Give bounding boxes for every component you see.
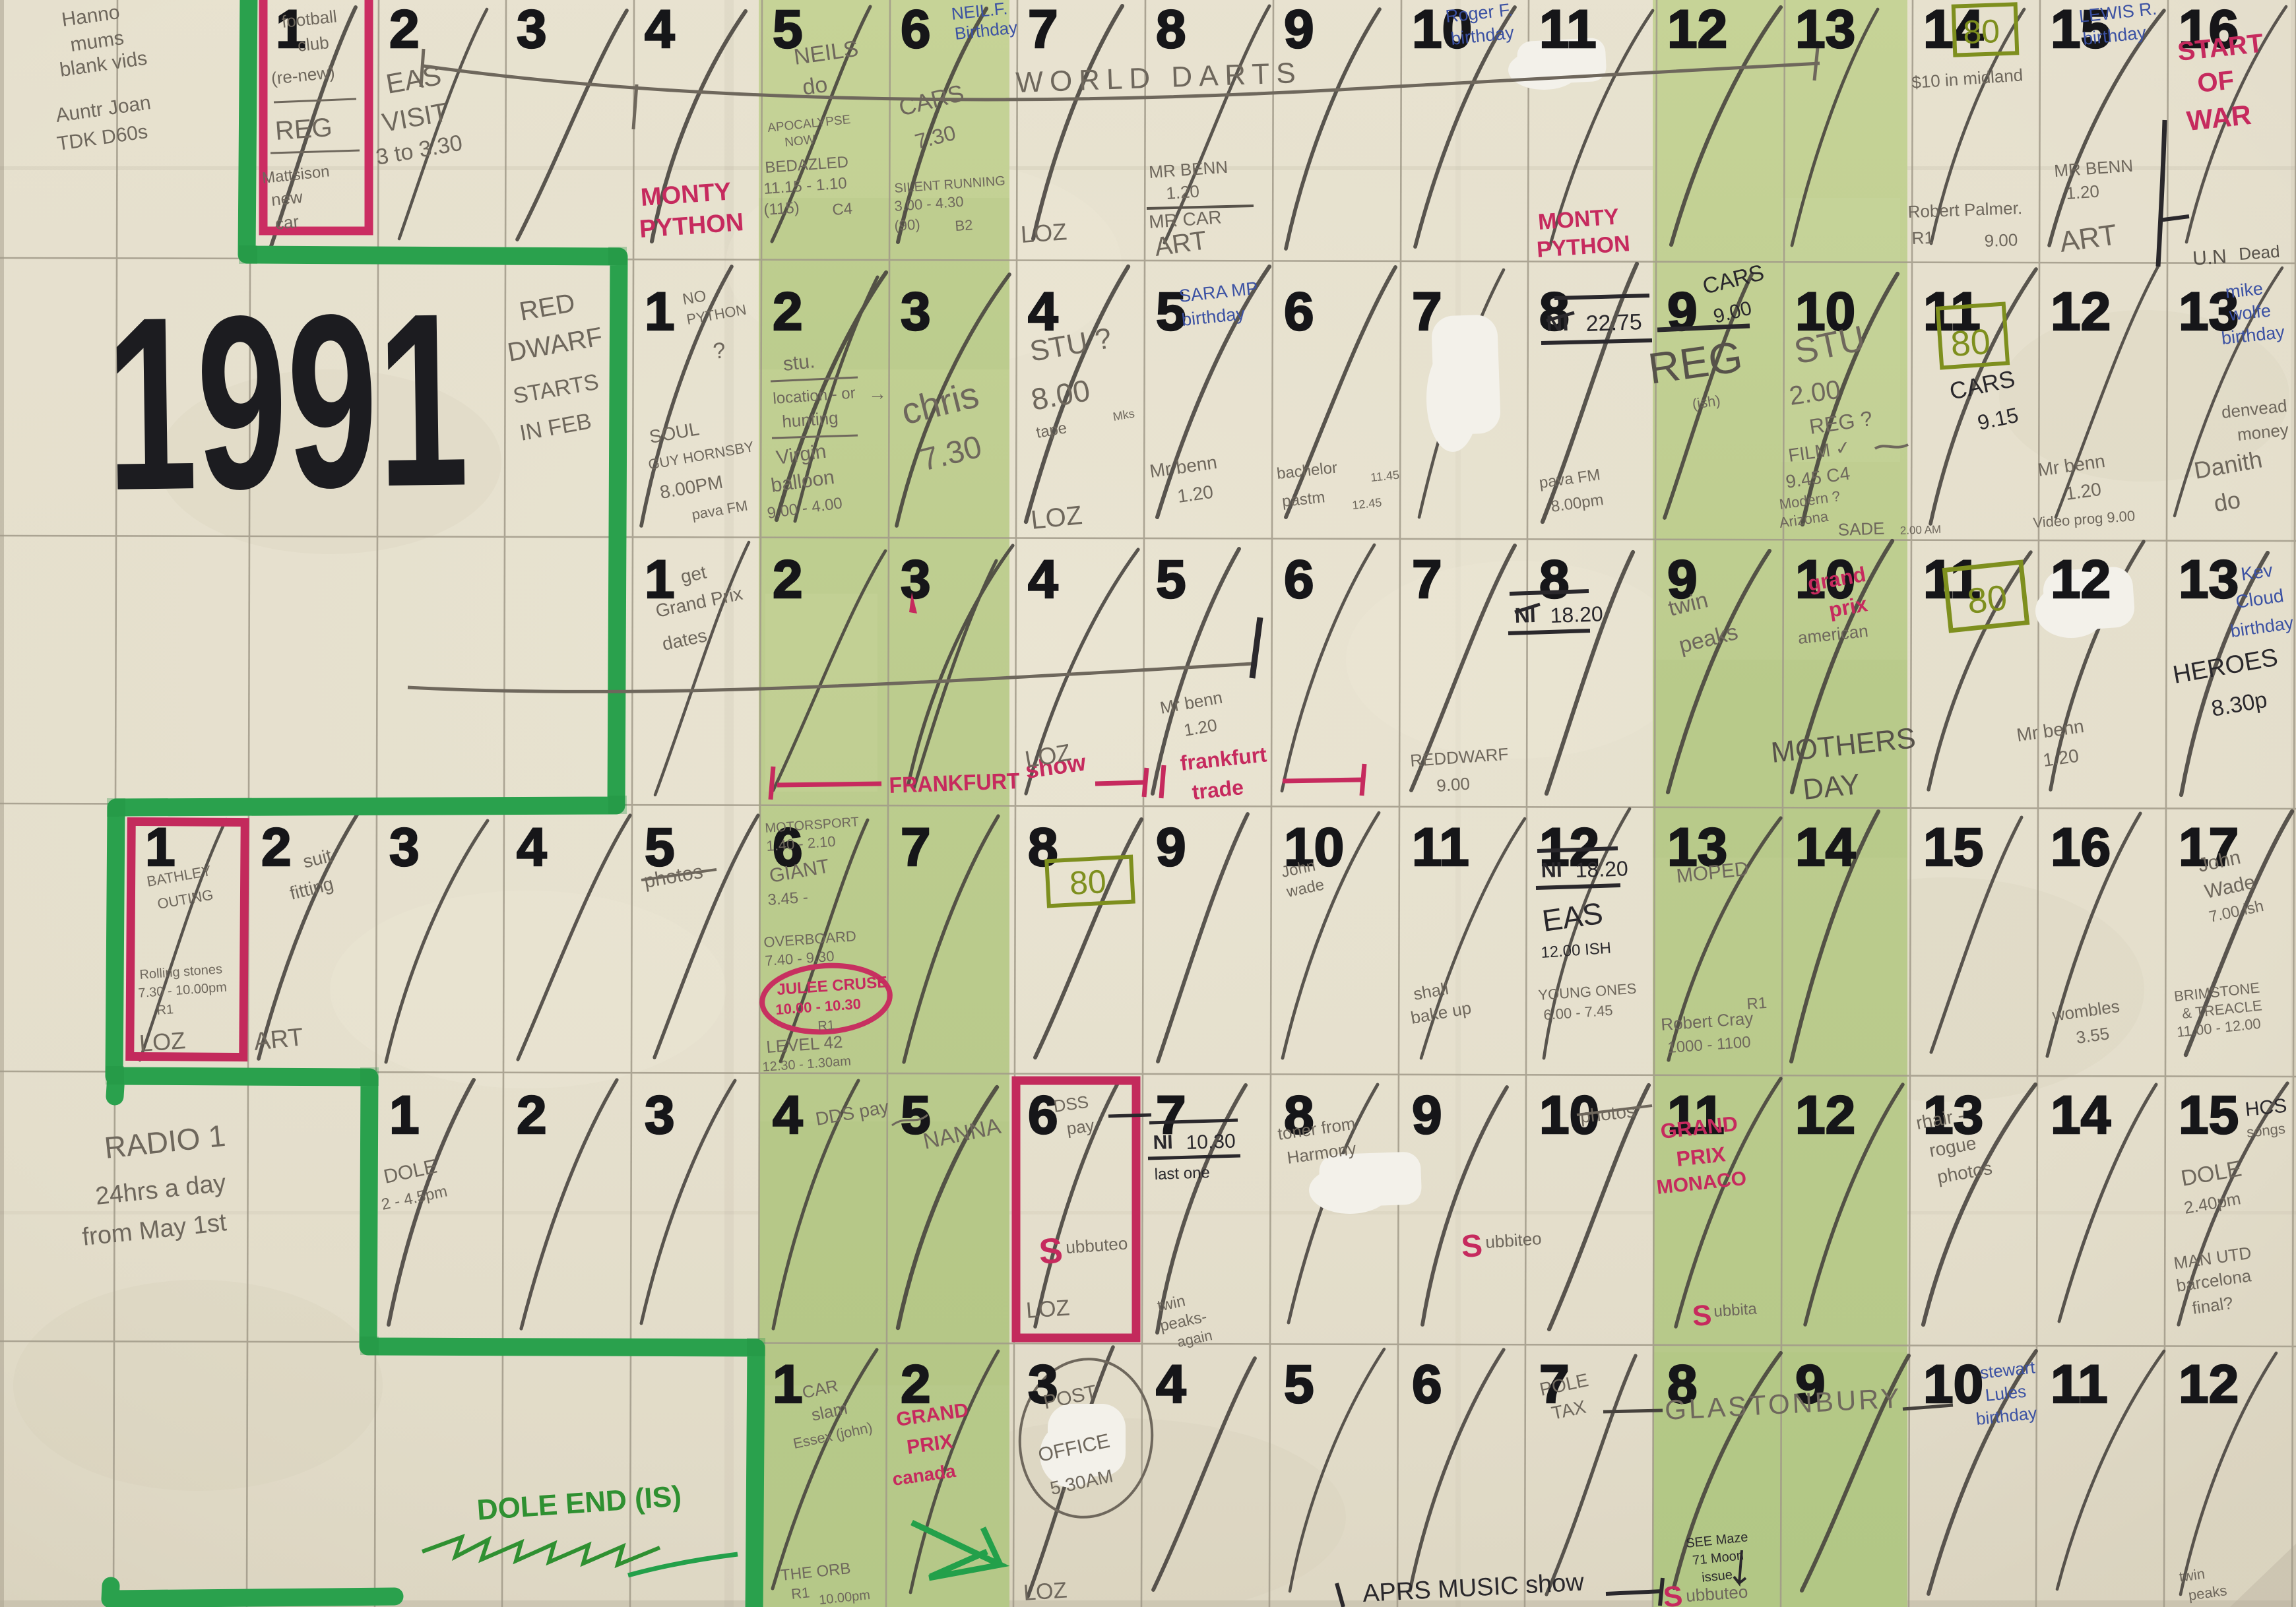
svg-text:S: S bbox=[1691, 1299, 1713, 1333]
svg-text:2: 2 bbox=[389, 0, 420, 59]
svg-text:(90): (90) bbox=[894, 216, 921, 234]
svg-text:?: ? bbox=[712, 338, 727, 364]
svg-text:9.00: 9.00 bbox=[1984, 230, 2018, 251]
svg-text:hunting: hunting bbox=[781, 408, 839, 431]
svg-text:mike: mike bbox=[2224, 278, 2264, 302]
svg-text:12: 12 bbox=[2179, 1354, 2239, 1414]
svg-text:S: S bbox=[1662, 1580, 1684, 1607]
svg-text:22.75: 22.75 bbox=[1585, 309, 1642, 336]
svg-text:5: 5 bbox=[1284, 1354, 1314, 1414]
svg-text:3: 3 bbox=[517, 0, 547, 59]
svg-text:HCS: HCS bbox=[2244, 1095, 2287, 1121]
svg-text:6: 6 bbox=[1412, 1354, 1442, 1414]
svg-text:2.00 AM: 2.00 AM bbox=[1899, 523, 1941, 537]
svg-text:3: 3 bbox=[901, 550, 931, 610]
svg-text:80: 80 bbox=[1069, 863, 1107, 902]
svg-text:1: 1 bbox=[389, 1085, 420, 1145]
svg-text:car: car bbox=[274, 211, 300, 234]
svg-text:REG: REG bbox=[274, 113, 334, 146]
svg-text:80: 80 bbox=[1965, 578, 2009, 621]
svg-text:Dead: Dead bbox=[2238, 241, 2280, 264]
svg-text:7: 7 bbox=[1412, 550, 1442, 610]
svg-text:R1: R1 bbox=[817, 1018, 835, 1034]
svg-text:12: 12 bbox=[2051, 282, 2111, 342]
svg-text:new: new bbox=[270, 187, 303, 210]
svg-text:6: 6 bbox=[1284, 550, 1314, 610]
svg-text:2: 2 bbox=[261, 817, 292, 877]
svg-text:80: 80 bbox=[1962, 13, 2000, 51]
svg-text:1: 1 bbox=[645, 282, 675, 342]
svg-text:4: 4 bbox=[1156, 1354, 1186, 1414]
svg-text:pay: pay bbox=[1066, 1115, 1096, 1139]
svg-text:SADE: SADE bbox=[1837, 519, 1885, 540]
svg-text:ubbita: ubbita bbox=[1713, 1300, 1758, 1321]
svg-text:12: 12 bbox=[1795, 1085, 1855, 1145]
svg-text:9: 9 bbox=[1284, 0, 1314, 59]
svg-text:1.20: 1.20 bbox=[2065, 181, 2100, 203]
svg-text:LOZ: LOZ bbox=[1029, 501, 1083, 535]
svg-text:14: 14 bbox=[1795, 817, 1856, 877]
svg-text:3: 3 bbox=[389, 817, 420, 877]
svg-text:C4: C4 bbox=[832, 200, 853, 219]
svg-text:3: 3 bbox=[645, 1085, 675, 1145]
svg-text:R1: R1 bbox=[156, 1002, 174, 1018]
svg-text:3.45 -: 3.45 - bbox=[767, 889, 809, 909]
svg-text:LOZ: LOZ bbox=[1020, 218, 1068, 248]
svg-text:1.20: 1.20 bbox=[1165, 181, 1200, 203]
svg-text:8: 8 bbox=[1539, 550, 1570, 610]
svg-text:last one: last one bbox=[1154, 1164, 1210, 1183]
svg-text:3: 3 bbox=[901, 282, 931, 342]
svg-text:8: 8 bbox=[1028, 817, 1058, 877]
svg-text:1: 1 bbox=[145, 817, 175, 877]
svg-text:80: 80 bbox=[1950, 322, 1992, 364]
svg-text:Robert Palmer.: Robert Palmer. bbox=[1907, 198, 2022, 222]
svg-text:4: 4 bbox=[517, 817, 547, 877]
svg-text:U.N: U.N bbox=[2192, 245, 2227, 270]
svg-text:9: 9 bbox=[1667, 282, 1698, 342]
svg-text:5: 5 bbox=[1156, 550, 1186, 610]
svg-text:6: 6 bbox=[1028, 1085, 1058, 1145]
svg-text:FRANKFURT: FRANKFURT bbox=[889, 769, 1020, 798]
svg-text:12: 12 bbox=[1667, 0, 1727, 59]
svg-text:13: 13 bbox=[2179, 550, 2239, 610]
svg-text:11: 11 bbox=[2051, 1354, 2108, 1414]
svg-text:LOZ: LOZ bbox=[139, 1026, 187, 1057]
svg-text:LOZ: LOZ bbox=[1025, 1295, 1071, 1323]
svg-text:do: do bbox=[2212, 486, 2243, 517]
svg-text:R1: R1 bbox=[790, 1584, 811, 1602]
svg-text:do: do bbox=[801, 72, 829, 100]
svg-text:S: S bbox=[1038, 1231, 1064, 1272]
svg-text:club: club bbox=[296, 32, 330, 55]
svg-text:18.20: 18.20 bbox=[1575, 856, 1628, 882]
svg-text:7: 7 bbox=[901, 817, 931, 877]
svg-text:6: 6 bbox=[1284, 282, 1314, 342]
svg-text:9: 9 bbox=[1156, 817, 1186, 877]
svg-text:7: 7 bbox=[1028, 0, 1058, 59]
svg-text:4: 4 bbox=[773, 1085, 803, 1145]
svg-text:10.30: 10.30 bbox=[1186, 1130, 1236, 1154]
svg-text:NI: NI bbox=[1541, 858, 1562, 882]
svg-text:16: 16 bbox=[2051, 817, 2111, 877]
svg-text:18.20: 18.20 bbox=[1550, 602, 1603, 627]
svg-text:4: 4 bbox=[645, 0, 675, 59]
svg-text:12: 12 bbox=[2051, 550, 2111, 610]
svg-text:stu.: stu. bbox=[782, 350, 816, 375]
svg-text:1: 1 bbox=[773, 1354, 803, 1414]
svg-text:4: 4 bbox=[1028, 550, 1058, 610]
svg-text:11: 11 bbox=[1539, 0, 1597, 59]
svg-text:6: 6 bbox=[901, 0, 931, 59]
svg-text:9.00: 9.00 bbox=[1436, 774, 1471, 796]
svg-text:9: 9 bbox=[1412, 1085, 1442, 1145]
svg-text:7: 7 bbox=[1412, 282, 1442, 342]
svg-text:LOZ: LOZ bbox=[1023, 1577, 1068, 1606]
svg-text:8: 8 bbox=[1156, 0, 1186, 59]
svg-text:→: → bbox=[868, 383, 887, 404]
svg-text:15: 15 bbox=[2179, 1085, 2239, 1145]
svg-text:ubbiteo: ubbiteo bbox=[1484, 1228, 1542, 1252]
svg-text:ART: ART bbox=[253, 1023, 305, 1056]
svg-text:14: 14 bbox=[2051, 1085, 2111, 1145]
svg-text:(115): (115) bbox=[763, 199, 800, 219]
svg-text:S: S bbox=[1460, 1228, 1484, 1265]
svg-text:2: 2 bbox=[773, 550, 803, 610]
svg-text:NI: NI bbox=[1153, 1131, 1173, 1154]
svg-text:15: 15 bbox=[1923, 817, 1983, 877]
svg-text:2: 2 bbox=[773, 282, 803, 342]
svg-text:2: 2 bbox=[517, 1085, 547, 1145]
svg-text:DAY: DAY bbox=[1801, 768, 1862, 806]
svg-text:1991: 1991 bbox=[104, 261, 470, 542]
svg-text:OF: OF bbox=[2196, 65, 2235, 98]
svg-text:B2: B2 bbox=[955, 216, 974, 234]
svg-text:11: 11 bbox=[1412, 817, 1469, 877]
svg-text:13: 13 bbox=[1795, 0, 1855, 59]
svg-text:R1: R1 bbox=[1911, 228, 1934, 248]
